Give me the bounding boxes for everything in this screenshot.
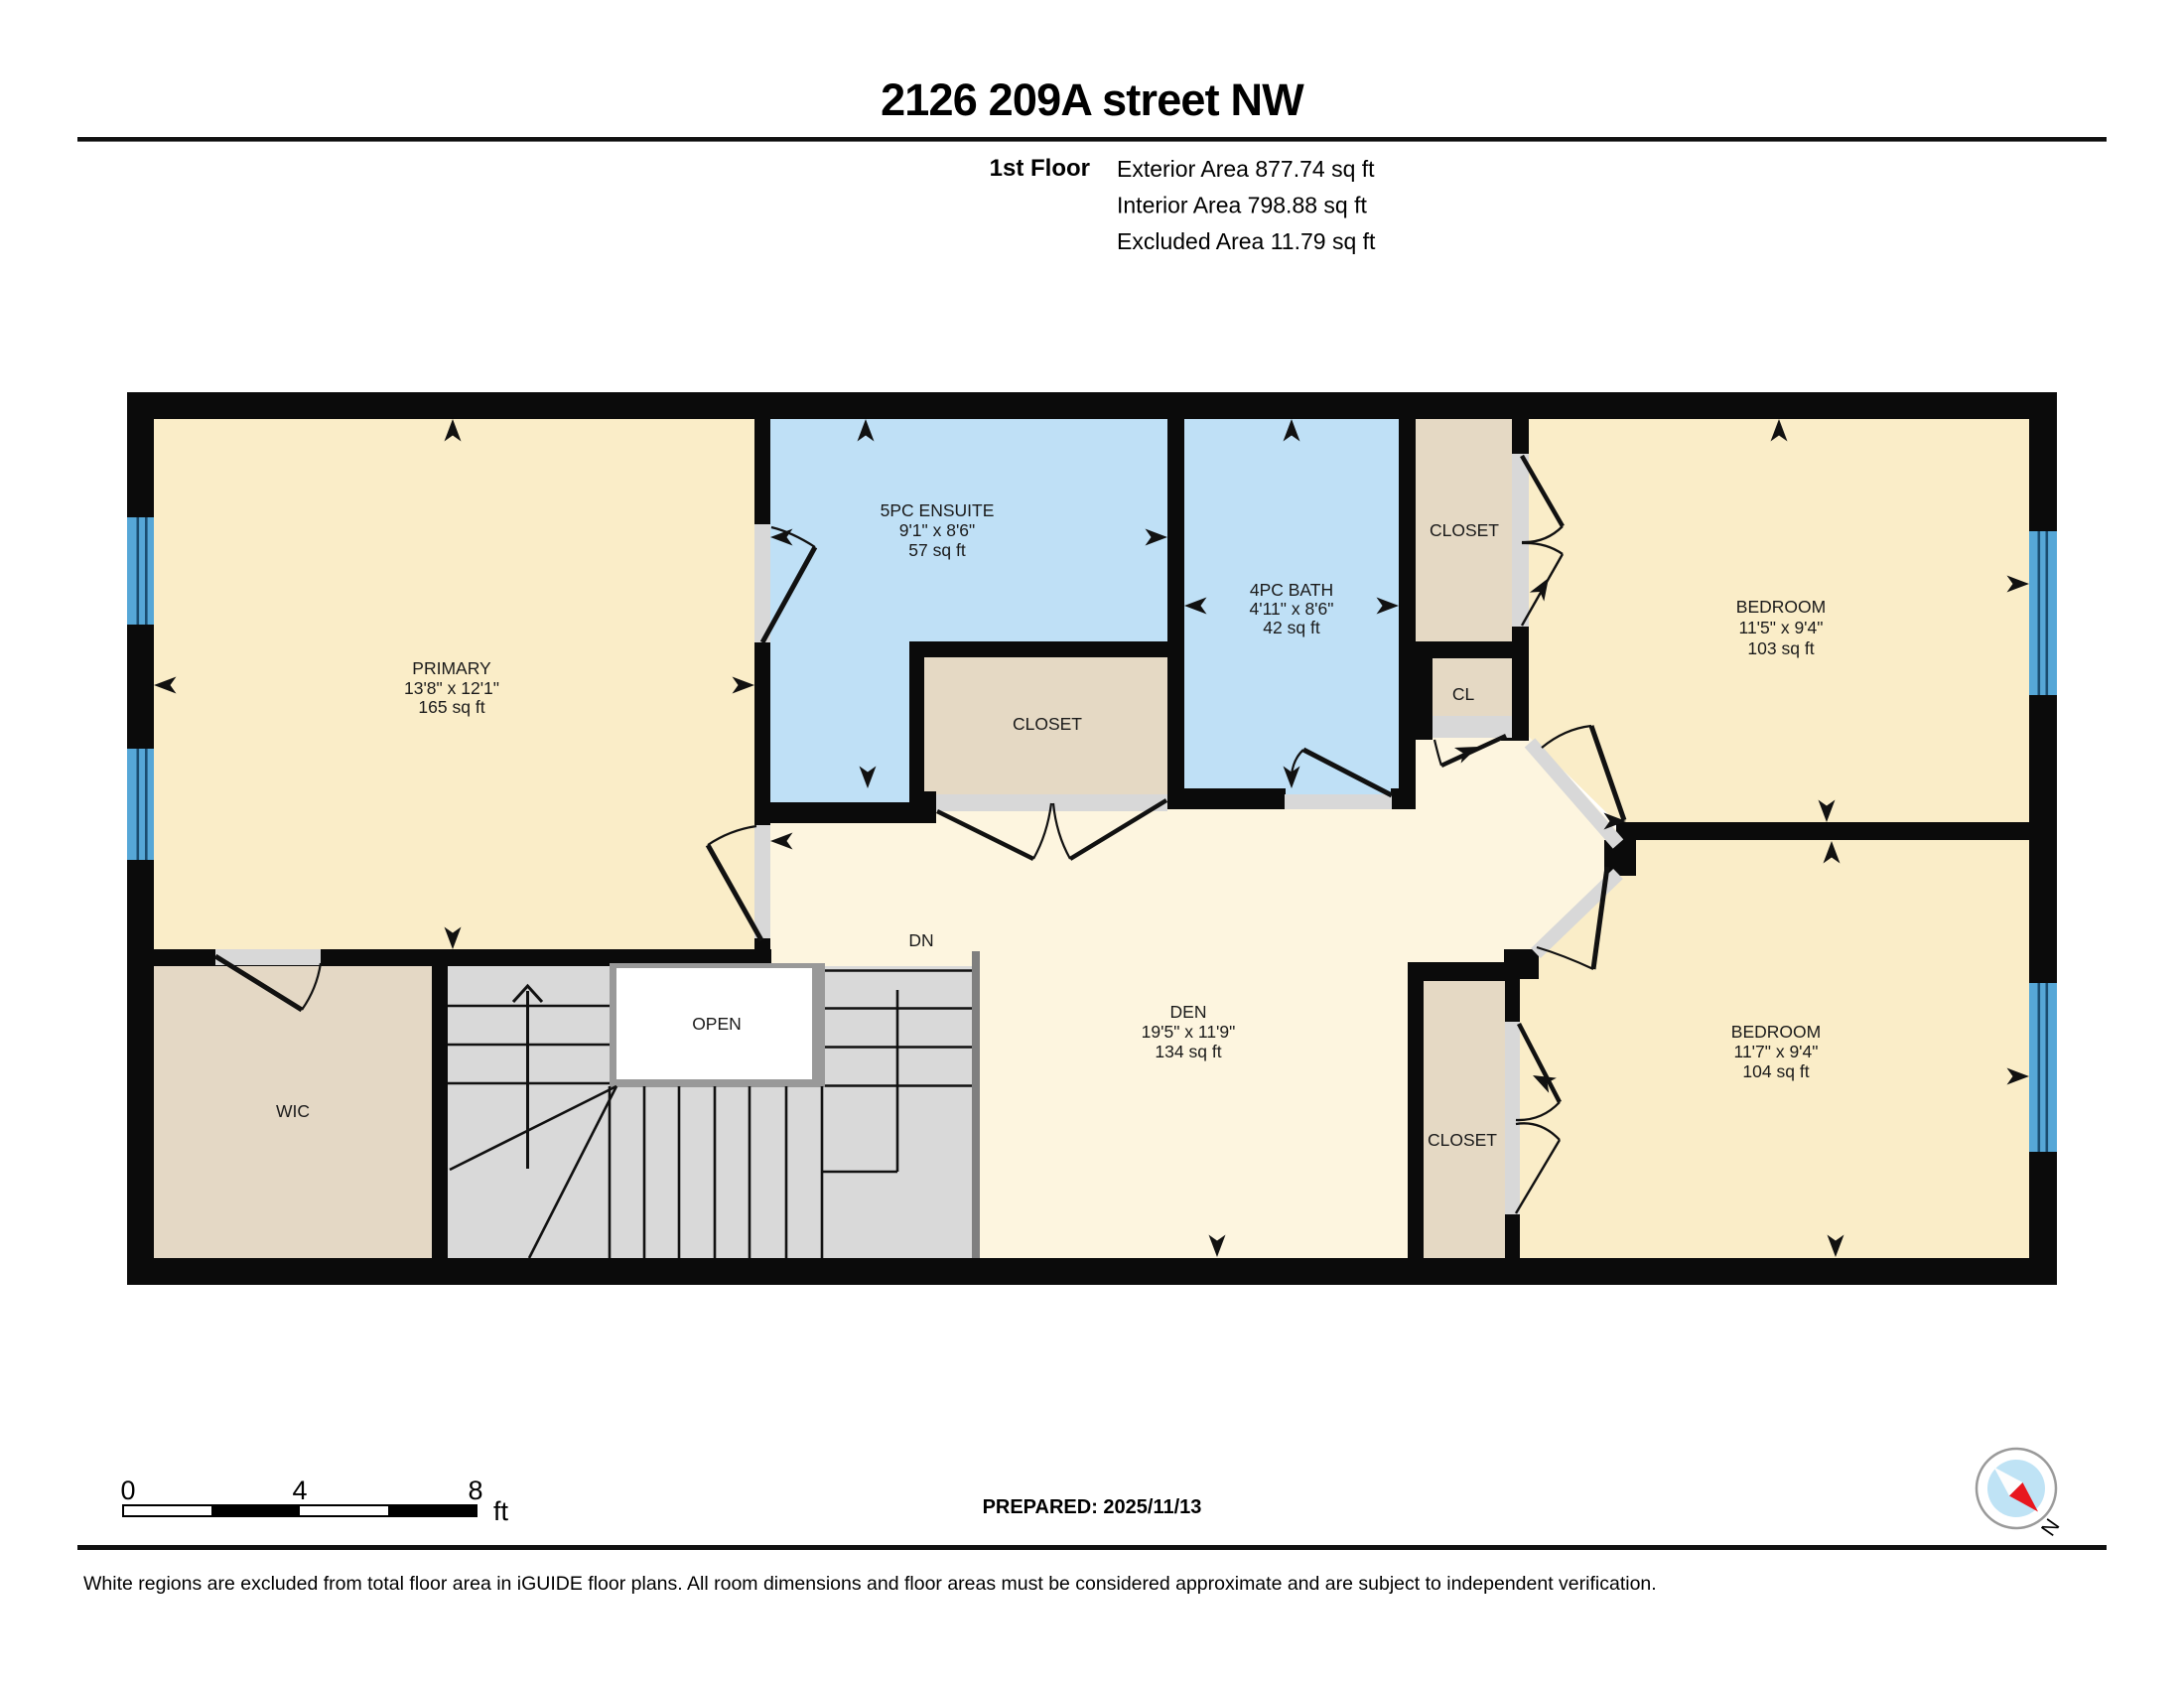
svg-text:Exterior Area 877.74 sq ft: Exterior Area 877.74 sq ft — [1117, 156, 1375, 182]
svg-text:9'1" x 8'6": 9'1" x 8'6" — [899, 520, 976, 540]
svg-text:BEDROOM: BEDROOM — [1731, 1022, 1821, 1042]
svg-text:DN: DN — [908, 930, 933, 950]
svg-text:CLOSET: CLOSET — [1428, 1130, 1497, 1150]
svg-text:104 sq ft: 104 sq ft — [1742, 1061, 1809, 1081]
svg-text:5PC ENSUITE: 5PC ENSUITE — [881, 500, 995, 520]
svg-text:165 sq ft: 165 sq ft — [418, 697, 484, 717]
svg-text:OPEN: OPEN — [692, 1014, 742, 1034]
svg-text:PRIMARY: PRIMARY — [412, 658, 491, 678]
svg-text:BEDROOM: BEDROOM — [1736, 597, 1826, 617]
svg-text:4'11" x 8'6": 4'11" x 8'6" — [1250, 599, 1334, 619]
svg-text:ft: ft — [493, 1496, 509, 1526]
svg-text:2126 209A street NW: 2126 209A street NW — [881, 74, 1304, 125]
svg-text:103 sq ft: 103 sq ft — [1747, 638, 1814, 658]
svg-text:CL: CL — [1452, 684, 1475, 704]
svg-text:134 sq ft: 134 sq ft — [1155, 1042, 1221, 1061]
svg-text:CLOSET: CLOSET — [1430, 520, 1499, 540]
svg-text:CLOSET: CLOSET — [1013, 714, 1082, 734]
svg-text:42 sq ft: 42 sq ft — [1263, 618, 1320, 637]
svg-text:4PC BATH: 4PC BATH — [1250, 580, 1333, 600]
svg-text:57 sq ft: 57 sq ft — [908, 540, 966, 560]
svg-text:DEN: DEN — [1170, 1002, 1207, 1022]
svg-text:White regions are excluded fro: White regions are excluded from total fl… — [83, 1573, 1657, 1595]
svg-text:1st Floor: 1st Floor — [990, 155, 1090, 182]
svg-text:Interior Area 798.88 sq ft: Interior Area 798.88 sq ft — [1117, 193, 1367, 218]
svg-text:WIC: WIC — [276, 1101, 310, 1121]
svg-text:13'8" x 12'1": 13'8" x 12'1" — [404, 678, 499, 698]
svg-text:4: 4 — [292, 1476, 307, 1505]
svg-text:8: 8 — [468, 1476, 482, 1505]
svg-text:Excluded Area 11.79 sq ft: Excluded Area 11.79 sq ft — [1117, 228, 1376, 254]
svg-text:19'5" x 11'9": 19'5" x 11'9" — [1142, 1022, 1236, 1042]
svg-text:PREPARED: 2025/11/13: PREPARED: 2025/11/13 — [983, 1496, 1202, 1518]
svg-text:11'5" x 9'4": 11'5" x 9'4" — [1739, 618, 1824, 637]
svg-text:11'7" x 9'4": 11'7" x 9'4" — [1734, 1042, 1819, 1061]
svg-text:0: 0 — [120, 1476, 135, 1505]
